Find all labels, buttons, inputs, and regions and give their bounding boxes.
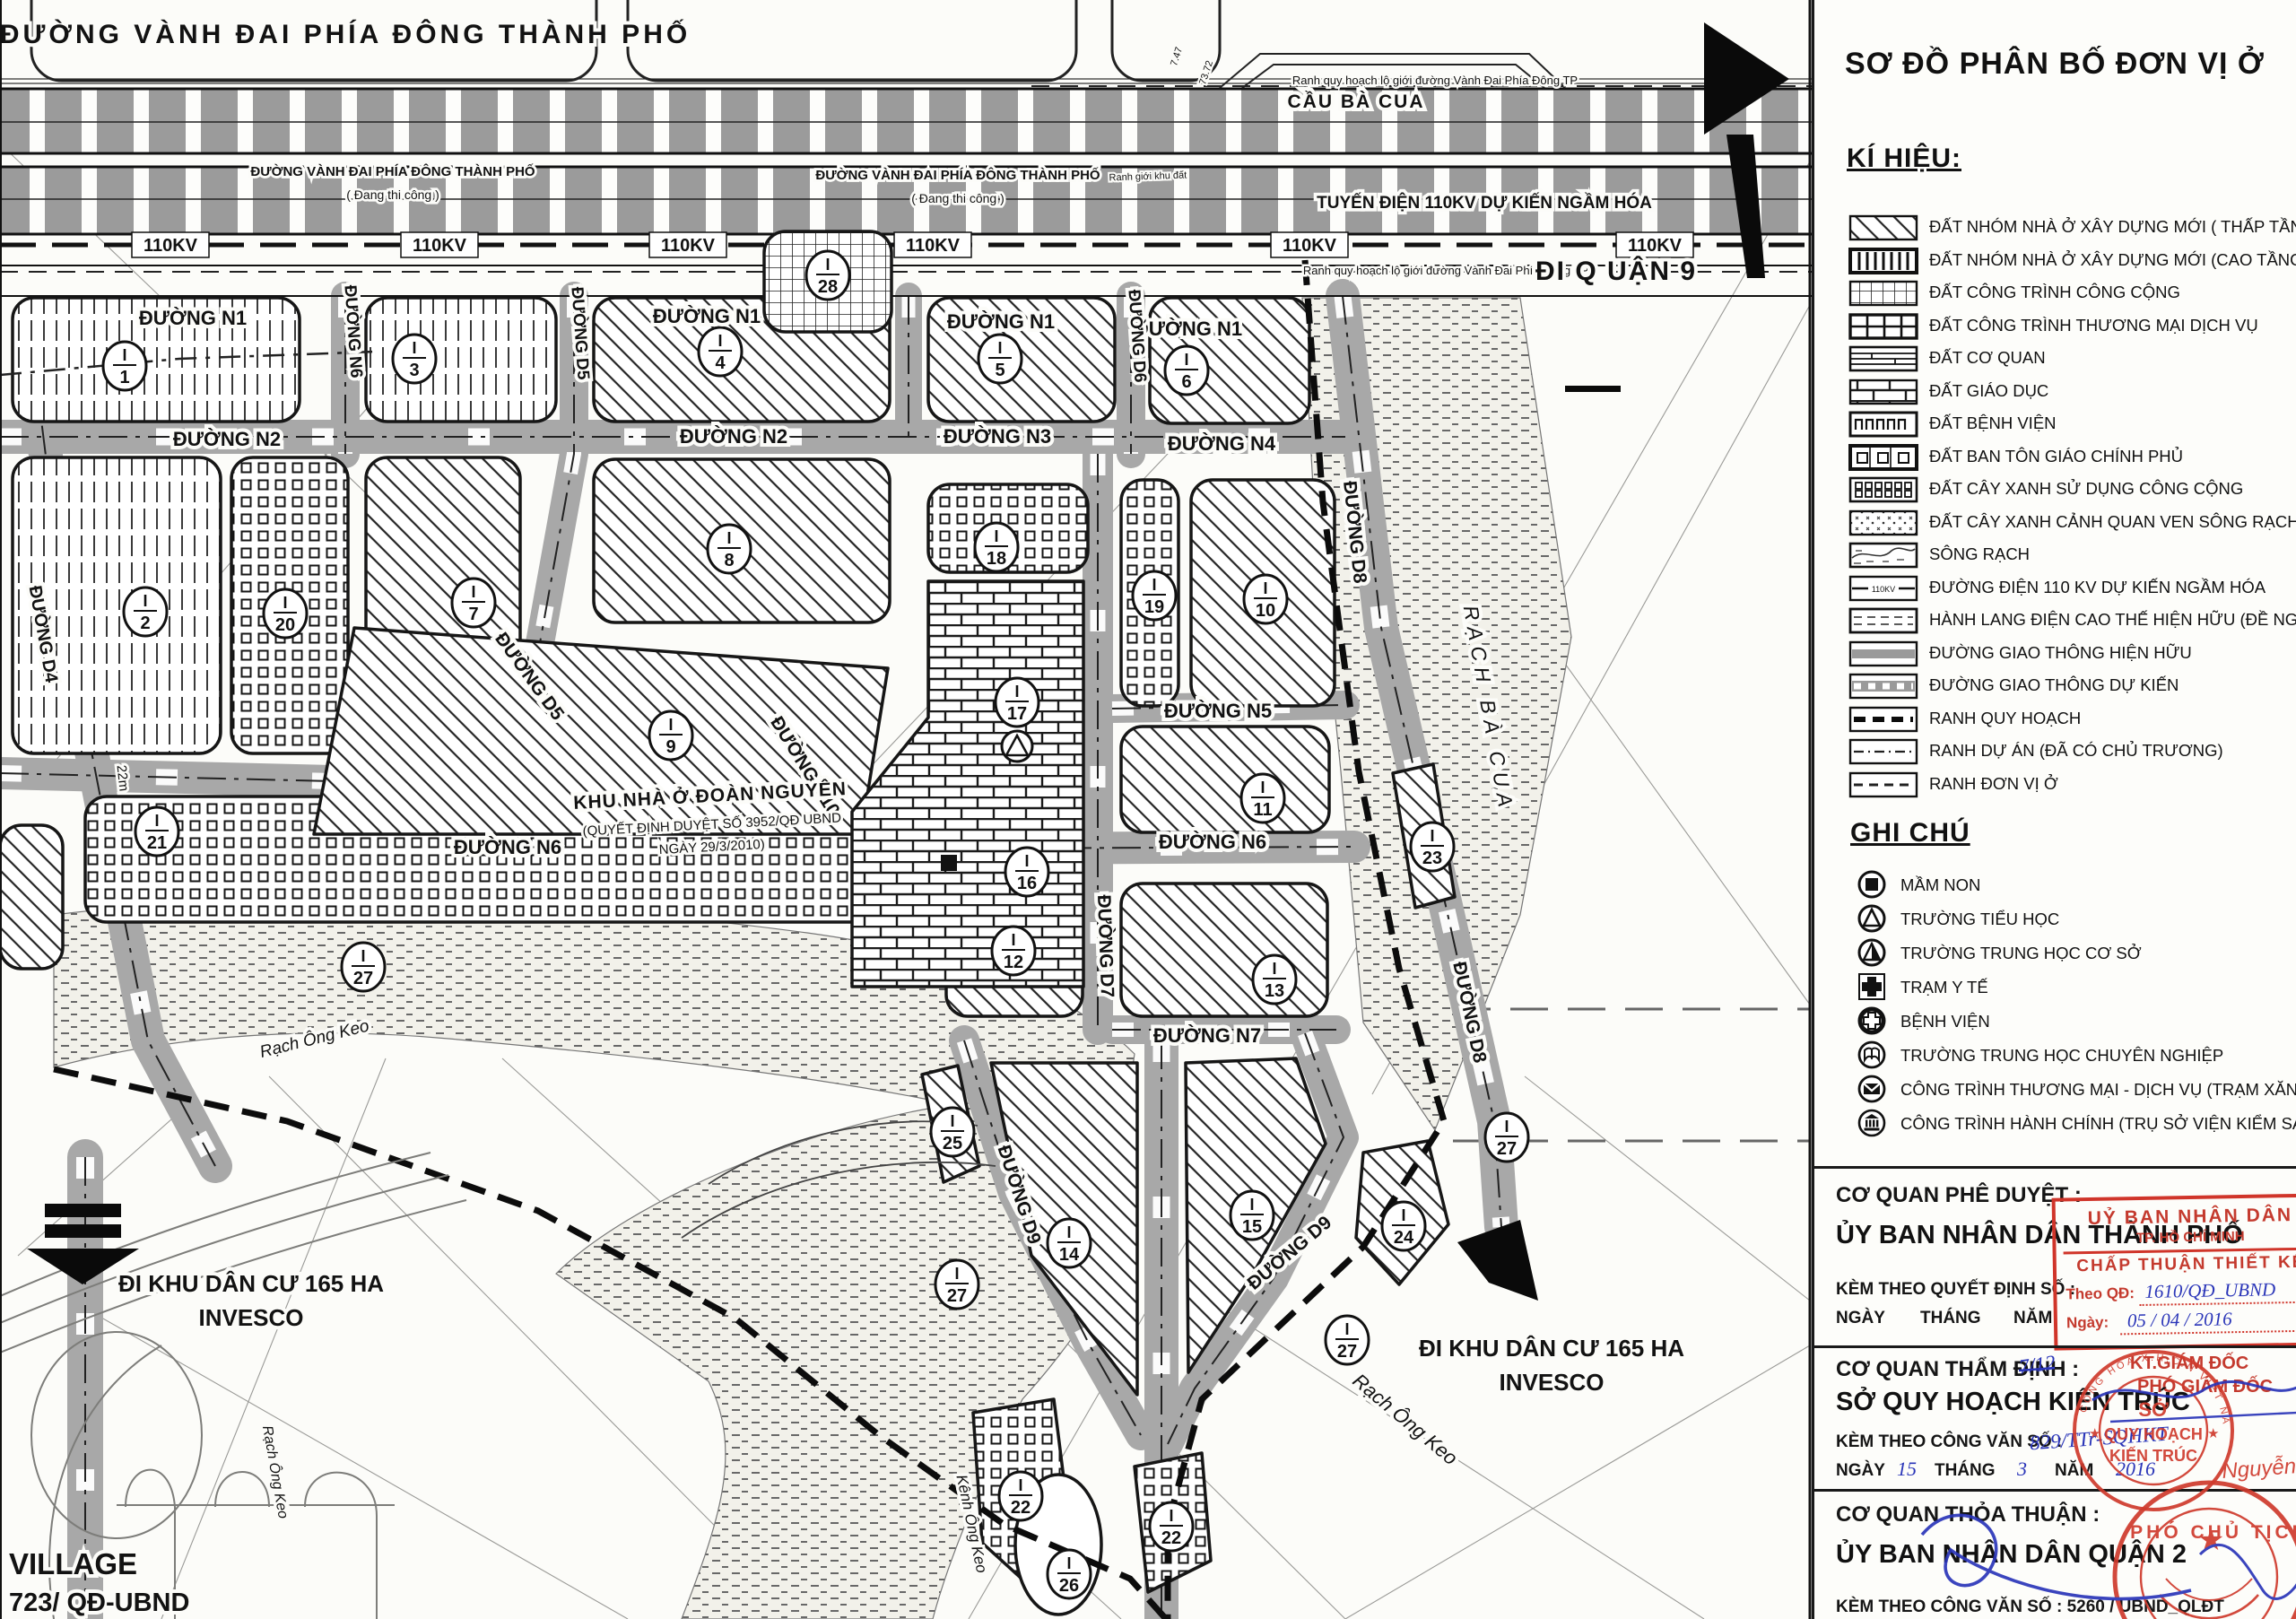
brick-swatch (1848, 379, 1918, 405)
grid-large-swatch (1848, 313, 1918, 340)
note-item: CÔNG TRÌNH THƯƠNG MẠI - DỊCH VỤ (TRẠM XĂ… (1814, 1073, 2296, 1107)
map-label: 22m (113, 764, 131, 792)
svg-text:I: I (122, 346, 126, 364)
approval-section-thoa-thuan: CƠ QUAN THỎA THUẬN : ỦY BAN NHÂN DÂN QUẬ… (1814, 1489, 2296, 1619)
legend-item: ĐẤT NHÓM NHÀ Ở XÂY DỰNG MỚI (CAO TẦNG) (1814, 247, 2296, 277)
unit-circle: I8 (708, 525, 751, 573)
vert-bars-swatch (1848, 248, 1918, 274)
svg-text:I: I (471, 583, 475, 601)
svg-text:I: I (1066, 1223, 1071, 1241)
svg-text:22: 22 (1011, 1498, 1031, 1518)
svg-text:I: I (1430, 827, 1434, 845)
unit-circle: I5 (978, 335, 1022, 383)
map-label: ĐƯỜNG VÀNH ĐAI PHÍA ĐÔNG THÀNH PHỐ (815, 167, 1100, 183)
map-label: ĐƯỜNG N3 (944, 425, 1051, 448)
svg-text:I: I (954, 1265, 959, 1283)
note-item-label: MẦM NON (1900, 875, 1980, 895)
decision-attach-label: KÈM THEO QUYẾT ĐỊNH SỐ : (1836, 1280, 2075, 1300)
note-item: TRẠM Y TẾ (1814, 971, 2296, 1005)
svg-text:19: 19 (1144, 597, 1164, 617)
svg-text:110KV: 110KV (1283, 236, 1337, 256)
unit-circle: I22 (999, 1472, 1042, 1520)
health-station-icon (1856, 971, 1888, 1003)
svg-text:I: I (825, 256, 830, 274)
primary-school-icon (1856, 902, 1888, 935)
unit-circle: I28 (806, 251, 849, 300)
map-label: ĐƯỜNG N2 (173, 428, 281, 450)
svg-text:110KV: 110KV (661, 236, 716, 256)
kv-box: 110KV (894, 232, 971, 257)
unit-circle: I23 (1411, 823, 1454, 871)
svg-text:I: I (1401, 1206, 1405, 1224)
kt-giam-doc-label: KT.GIÁM ĐỐC (2130, 1354, 2248, 1374)
ranh-quy-hoach-swatch (1848, 706, 1918, 733)
map-label: ĐƯỜNG N4 (1168, 432, 1276, 455)
svg-text:22: 22 (1161, 1528, 1181, 1548)
site-plan-map: I1I2I3I4I5I6I7I8I9I10I11I12I13I14I15I16I… (0, 0, 1812, 1619)
svg-text:I: I (717, 332, 722, 350)
svg-text:I: I (1152, 576, 1156, 594)
hospital-comb-swatch (1848, 411, 1918, 438)
svg-text:110KV: 110KV (413, 236, 467, 256)
svg-text:4: 4 (715, 353, 726, 373)
svg-text:26: 26 (1059, 1576, 1079, 1596)
agreeing-agency-name: ỦY BAN NHÂN DÂN QUẬN 2 (1836, 1540, 2187, 1570)
note-item-label: TRẠM Y TẾ (1900, 978, 1988, 997)
legend-item: 110KVĐƯỜNG ĐIỆN 110 KV DỰ KIẾN NGẦM HÓA (1814, 574, 2296, 605)
table-rows-swatch (1848, 345, 1918, 372)
svg-text:I: I (726, 529, 731, 547)
legend-item-label: HÀNH LANG ĐIỆN CAO THẾ HIỆN HỮU (ĐỀ NGHỊ (1929, 610, 2296, 630)
approval-section-tham-dinh: CƠ QUAN THẨM ĐỊNH : 7/12 KT.GIÁM ĐỐC PHÓ… (1814, 1345, 2296, 1489)
appraising-agency-name: SỞ QUY HOẠCH KIẾN TRÚC (1836, 1388, 2190, 1417)
planning-map-sheet: I1I2I3I4I5I6I7I8I9I10I11I12I13I14I15I16I… (0, 0, 2296, 1619)
svg-text:I: I (950, 1112, 954, 1130)
date-day-label: NGÀY (1836, 1309, 1885, 1328)
unit-circle: I19 (1133, 571, 1176, 620)
legend-item: RANH QUY HOẠCH (1814, 705, 2296, 736)
svg-text:I: I (143, 592, 147, 610)
svg-text:11: 11 (1253, 800, 1272, 820)
road-planned-swatch (1848, 673, 1918, 700)
svg-text:10: 10 (1256, 601, 1275, 621)
svg-text:I: I (997, 339, 1002, 357)
map-label: ĐƯỜNG N1 (1135, 318, 1242, 340)
svg-text:15: 15 (1242, 1217, 1262, 1237)
date-year-label: NĂM (2013, 1309, 2052, 1328)
map-label: ĐƯỜNG N7 (1153, 1024, 1261, 1047)
map-label: 723/ QĐ-UBND (9, 1589, 189, 1617)
unit-circle: I7 (452, 579, 495, 627)
notes-heading: GHI CHÚ (1850, 818, 1970, 849)
legend-item: ĐƯỜNG GIAO THÔNG HIỆN HỮU (1814, 640, 2296, 670)
s2-year-label: NĂM (2055, 1461, 2093, 1481)
svg-text:I: I (1263, 579, 1267, 597)
power-line-swatch: 110KV (1848, 575, 1918, 602)
date-month-label: THÁNG (1920, 1309, 1981, 1328)
legend-item-label: ĐẤT CÔNG TRÌNH CÔNG CỘNG (1929, 283, 2180, 302)
kv-box: 110KV (1271, 232, 1348, 257)
map-label: VILLAGE (9, 1547, 137, 1580)
park-squares-swatch (1848, 476, 1918, 503)
legend-item: HÀNH LANG ĐIỆN CAO THẾ HIỆN HỮU (ĐỀ NGHỊ (1814, 606, 2296, 637)
svg-text:I: I (361, 947, 365, 965)
ranh-du-an-swatch (1848, 738, 1918, 765)
map-label: TUYẾN ĐIỆN 110KV DỰ KIẾN NGẦM HÓA (1317, 193, 1652, 213)
unit-circle: I27 (1326, 1316, 1369, 1364)
svg-text:9: 9 (665, 737, 675, 757)
note-item-label: CÔNG TRÌNH THƯƠNG MẠI - DỊCH VỤ (TRẠM XĂ… (1900, 1080, 2296, 1100)
kv-box: 110KV (401, 232, 478, 257)
svg-text:27: 27 (947, 1286, 967, 1306)
unit-circle: I27 (342, 943, 385, 991)
legend-item: RANH ĐƠN VỊ Ở (1814, 770, 2296, 801)
administration-icon (1856, 1107, 1888, 1139)
legend-item: ĐẤT CÂY XANH SỬ DỤNG CÔNG CỘNG (1814, 475, 2296, 506)
s2-year-value: 2016 (2116, 1458, 2155, 1481)
svg-text:18: 18 (987, 549, 1006, 569)
map-canvas: I1I2I3I4I5I6I7I8I9I10I11I12I13I14I15I16I… (0, 0, 1812, 1619)
unit-circle: I27 (935, 1260, 978, 1309)
legend-item-label: SÔNG RẠCH (1929, 544, 2030, 564)
legend-item: ĐẤT GIÁO DỤC (1814, 378, 2296, 408)
unit-circle: I22 (1150, 1502, 1193, 1551)
svg-text:110KV: 110KV (1872, 585, 1895, 594)
svg-text:110KV: 110KV (1628, 236, 1683, 256)
map-label: ( Đang thi công ) (911, 191, 1004, 205)
svg-text:I: I (1272, 960, 1276, 978)
document-number-value: 829/TTr-SQHKT (2029, 1423, 2169, 1456)
unit-circle: I18 (975, 523, 1018, 571)
unit-circle: I16 (1005, 848, 1048, 896)
svg-text:I: I (412, 339, 416, 357)
svg-text:12: 12 (1004, 953, 1023, 972)
stamp-theo-label: Theo QĐ: (2066, 1284, 2135, 1303)
svg-text:5: 5 (995, 361, 1004, 380)
map-label: ĐƯỜNG N1 (139, 307, 247, 329)
legend-item: RANH DỰ ÁN (ĐÃ CÓ CHỦ TRƯƠNG) (1814, 737, 2296, 768)
svg-text:27: 27 (1337, 1342, 1357, 1362)
unit-circle: I27 (1485, 1113, 1528, 1162)
svg-text:13: 13 (1265, 981, 1284, 1001)
road-existing-swatch (1848, 640, 1918, 667)
svg-text:I: I (1184, 351, 1188, 369)
grid-small-swatch (1848, 280, 1918, 307)
legend-item: ĐẤT NHÓM NHÀ Ở XÂY DỰNG MỚI ( THẤP TẦNG) (1814, 213, 2296, 244)
unit-circle: I3 (393, 335, 436, 383)
svg-text:27: 27 (353, 969, 373, 988)
commerce-icon (1856, 1073, 1888, 1105)
map-label: Ranh quy hoạch lộ giới đường Vành Đai Ph… (1292, 74, 1578, 87)
map-label: ĐƯỜNG VÀNH ĐAI PHÍA ĐÔNG THÀNH PHỐ (250, 163, 535, 179)
svg-text:2: 2 (140, 614, 150, 633)
approval-table: CƠ QUAN PHÊ DUYỆT : ỦY BAN NHÂN DÂN THÀN… (1814, 1166, 2296, 1619)
note-item: BỆNH VIỆN (1814, 1005, 2296, 1039)
note-item-label: BỆNH VIỆN (1900, 1012, 1990, 1031)
unit-circle: I15 (1231, 1191, 1274, 1240)
river-swatch (1848, 542, 1918, 569)
unit-circle: I4 (699, 327, 742, 376)
document-attach-label: KÈM THEO CÔNG VĂN SỐ : (1836, 1432, 2062, 1452)
legend-item-label: ĐẤT CÂY XANH SỬ DỤNG CÔNG CỘNG (1929, 479, 2243, 499)
map-label: ĐI Q UẬN 9 (1535, 256, 1697, 286)
svg-text:I: I (1014, 683, 1019, 701)
map-label: ĐƯỜNG D7 (1093, 894, 1118, 997)
kv-box: 110KV (649, 232, 726, 257)
map-label: ĐƯỜNG VÀNH ĐAI PHÍA ĐÔNG THÀNH PHỐ (0, 19, 691, 49)
legend-item-label: ĐẤT BỆNH VIỆN (1929, 413, 2057, 433)
s2-month-value: 3 (2017, 1458, 2027, 1481)
unit-circle: I1 (103, 342, 146, 390)
s3-attach-label: KÈM THEO CÔNG VĂN SỐ : 5260 / UBND_QLĐT (1836, 1597, 2224, 1617)
unit-circle: I10 (1244, 575, 1287, 623)
legend-item-label: ĐẤT NHÓM NHÀ Ở XÂY DỰNG MỚI (CAO TẦNG) (1929, 250, 2296, 270)
note-item: CÔNG TRÌNH HÀNH CHÍNH (TRỤ SỞ VIỆN KIỂM … (1814, 1107, 2296, 1141)
stipple-dots-swatch (1848, 509, 1918, 536)
legend-item: ĐẤT BAN TÔN GIÁO CHÍNH PHỦ (1814, 443, 2296, 474)
s2-day-value: 15 (1897, 1458, 1917, 1481)
legend-item-label: ĐƯỜNG GIAO THÔNG HIỆN HỮU (1929, 643, 2192, 663)
unit-circle: I20 (264, 589, 307, 638)
s2-month-label: THÁNG (1935, 1461, 1996, 1481)
legend-item: ĐẤT CÂY XANH CẢNH QUAN VEN SÔNG RẠCH (1814, 509, 2296, 539)
note-item-label: TRƯỜNG TRUNG HỌC CHUYÊN NGHIỆP (1900, 1046, 2223, 1066)
kindergarten-icon (1856, 868, 1888, 901)
svg-text:I: I (1011, 931, 1015, 949)
page-title: SƠ ĐỒ PHÂN BỐ ĐƠN VỊ Ở (1845, 47, 2265, 82)
legend-item-label: ĐẤT CÂY XANH CẢNH QUAN VEN SÔNG RẠCH (1929, 512, 2296, 532)
svg-text:21: 21 (147, 833, 167, 853)
stamp-line3: CHẤP THUẬN THIẾT KẾ (2057, 1252, 2296, 1276)
map-label: ĐƯỜNG N6 (1159, 831, 1266, 853)
map-label: CẦU BÀ CUA (1288, 91, 1425, 112)
unit-circle: I14 (1048, 1219, 1091, 1267)
legend-item-label: ĐẤT CÔNG TRÌNH THƯƠNG MẠI DỊCH VỤ (1929, 316, 2258, 335)
unit-circle: I24 (1382, 1202, 1425, 1250)
religion-squares-swatch (1848, 444, 1918, 471)
agreeing-agency-heading: CƠ QUAN THỎA THUẬN : (1836, 1502, 2100, 1528)
unit-circle: I21 (135, 807, 178, 856)
svg-text:25: 25 (943, 1134, 962, 1153)
legend-item-label: ĐẤT GIÁO DỤC (1929, 381, 2048, 401)
svg-text:I: I (1024, 852, 1029, 870)
note-item: TRƯỜNG TRUNG HỌC CƠ SỞ (1814, 936, 2296, 971)
middle-school-icon (1856, 936, 1888, 969)
legend-item-label: ĐƯỜNG ĐIỆN 110 KV DỰ KIẾN NGẦM HÓA (1929, 578, 2266, 597)
legend-item-label: ĐẤT CƠ QUAN (1929, 348, 2046, 368)
svg-text:17: 17 (1007, 704, 1027, 724)
ranh-don-vi-swatch (1848, 771, 1918, 798)
stamp-ngay-value: 05 / 04 / 2016 (2127, 1308, 2232, 1332)
svg-text:I: I (1066, 1554, 1071, 1572)
legend-item-label: RANH DỰ ÁN (ĐÃ CÓ CHỦ TRƯƠNG) (1929, 741, 2223, 761)
map-label: ĐI KHU DÂN CƯ 165 HA (118, 1270, 384, 1297)
svg-text:I: I (1018, 1476, 1022, 1494)
note-item: TRƯỜNG TRUNG HỌC CHUYÊN NGHIỆP (1814, 1039, 2296, 1073)
svg-text:110KV: 110KV (143, 236, 198, 256)
map-label: ĐƯỜNG N2 (680, 425, 787, 448)
legend-heading: KÍ HIỆU: (1847, 144, 1961, 174)
svg-text:8: 8 (724, 551, 734, 570)
svg-text:1: 1 (119, 368, 129, 387)
kv-box: 110KV (1616, 232, 1693, 257)
svg-text:6: 6 (1181, 372, 1191, 392)
legend-item-label: ĐƯỜNG GIAO THÔNG DỰ KIẾN (1929, 675, 2179, 695)
approval-stamp: UỶ BAN NHÂN DÂN TP. HỒ CHÍ MINH CHẤP THU… (2052, 1193, 2296, 1350)
svg-text:23: 23 (1422, 849, 1442, 868)
legend-item-label: ĐẤT BAN TÔN GIÁO CHÍNH PHỦ (1929, 447, 2183, 466)
svg-text:3: 3 (409, 361, 419, 380)
svg-text:I: I (154, 812, 159, 830)
map-label: ĐI KHU DÂN CƯ 165 HA (1419, 1335, 1684, 1362)
stamp-ngay-label: Ngày: (2066, 1314, 2109, 1333)
svg-text:I: I (668, 716, 673, 734)
unit-circle: I9 (649, 711, 692, 760)
note-item: TRƯỜNG TIỂU HỌC (1814, 902, 2296, 936)
map-label: ĐƯỜNG N1 (653, 305, 761, 327)
svg-text:I: I (1504, 1118, 1509, 1136)
stamp-line2: TP. HỒ CHÍ MINH (2056, 1227, 2296, 1247)
map-label: ( Đang thi công ) (346, 187, 439, 202)
legend-item: ĐƯỜNG GIAO THÔNG DỰ KIẾN (1814, 672, 2296, 702)
legend-item: ĐẤT BỆNH VIỆN (1814, 410, 2296, 440)
stamp-line1: UỶ BAN NHÂN DÂN (2056, 1204, 2296, 1230)
dashed-corridor-swatch (1848, 607, 1918, 634)
map-label: ĐƯỜNG N1 (947, 310, 1055, 333)
svg-text:I: I (1169, 1507, 1173, 1525)
svg-text:I: I (283, 594, 287, 612)
unit-circle: I12 (992, 927, 1035, 975)
stamp-theo-value: 1610/QĐ_UBND (2144, 1278, 2275, 1303)
approval-section-phe-duyet: CƠ QUAN PHÊ DUYỆT : ỦY BAN NHÂN DÂN THÀN… (1814, 1169, 2296, 1345)
svg-text:I: I (994, 527, 998, 545)
kv-box: 110KV (132, 232, 209, 257)
unit-circle: I11 (1241, 774, 1284, 823)
svg-text:14: 14 (1059, 1245, 1080, 1265)
legend-item-label: RANH QUY HOẠCH (1929, 709, 2081, 728)
map-label: ĐƯỜNG N6 (454, 836, 561, 858)
approving-agency-heading: CƠ QUAN PHÊ DUYỆT : (1836, 1183, 2082, 1208)
svg-text:110KV: 110KV (906, 236, 961, 256)
diag-hatch-swatch (1848, 214, 1918, 241)
map-label: INVESCO (198, 1304, 303, 1331)
svg-text:28: 28 (818, 277, 838, 297)
legend-item: SÔNG RẠCH (1814, 541, 2296, 571)
note-item-label: CÔNG TRÌNH HÀNH CHÍNH (TRỤ SỞ VIỆN KIỂM … (1900, 1114, 2296, 1134)
hospital-icon (1856, 1005, 1888, 1037)
note-item-label: TRƯỜNG TRUNG HỌC CƠ SỞ (1900, 944, 2142, 963)
unit-circle: I13 (1253, 955, 1296, 1004)
map-label: ĐƯỜNG N5 (1164, 700, 1272, 722)
legend-item: ĐẤT CƠ QUAN (1814, 344, 2296, 375)
unit-circle: I2 (124, 588, 167, 636)
svg-text:I: I (1344, 1320, 1349, 1338)
unit-circle: I6 (1165, 346, 1208, 395)
svg-text:I: I (1249, 1196, 1254, 1214)
svg-text:27: 27 (1497, 1139, 1517, 1159)
unit-circle: I26 (1048, 1550, 1091, 1598)
svg-text:I: I (1260, 779, 1265, 796)
svg-text:16: 16 (1017, 874, 1037, 893)
note-item: MẦM NON (1814, 868, 2296, 902)
unit-circle: I17 (996, 678, 1039, 727)
svg-text:24: 24 (1394, 1228, 1414, 1248)
s2-day-label: NGÀY (1836, 1461, 1885, 1481)
legend-panel: SƠ ĐỒ PHÂN BỐ ĐƠN VỊ Ở KÍ HIỆU: ĐẤT NHÓM… (1812, 0, 2296, 1619)
legend-item: ĐẤT CÔNG TRÌNH CÔNG CỘNG (1814, 279, 2296, 309)
legend-item-label: RANH ĐƠN VỊ Ở (1929, 774, 2058, 794)
svg-text:20: 20 (275, 615, 295, 635)
vocational-school-icon (1856, 1039, 1888, 1071)
unit-circle: I25 (931, 1108, 974, 1156)
svg-text:7: 7 (468, 605, 478, 624)
legend-item-label: ĐẤT NHÓM NHÀ Ở XÂY DỰNG MỚI ( THẤP TẦNG) (1929, 217, 2296, 237)
legend-item: ĐẤT CÔNG TRÌNH THƯƠNG MẠI DỊCH VỤ (1814, 312, 2296, 343)
map-label: INVESCO (1499, 1369, 1604, 1396)
note-item-label: TRƯỜNG TIỂU HỌC (1900, 910, 2059, 929)
